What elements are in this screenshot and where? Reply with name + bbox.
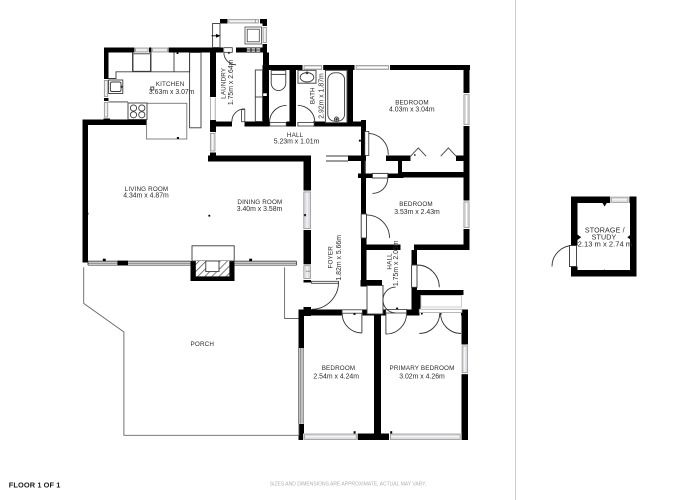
svg-text:5.23m x 1.01m: 5.23m x 1.01m bbox=[274, 139, 320, 146]
svg-text:FLOOR 1 OF 1: FLOOR 1 OF 1 bbox=[9, 480, 61, 489]
svg-text:2.13 m x 2.74 m: 2.13 m x 2.74 m bbox=[578, 240, 632, 249]
svg-text:2.92m x 1.87m: 2.92m x 1.87m bbox=[319, 73, 326, 119]
svg-text:BEDROOM: BEDROOM bbox=[399, 201, 433, 208]
svg-text:1.82m x 5.66m: 1.82m x 5.66m bbox=[336, 235, 343, 281]
svg-text:FOYER: FOYER bbox=[328, 246, 335, 269]
svg-text:1.75m x 2.05m: 1.75m x 2.05m bbox=[393, 240, 400, 286]
svg-text:BATH: BATH bbox=[310, 87, 317, 104]
svg-text:4.03m x 3.04m: 4.03m x 3.04m bbox=[389, 107, 435, 114]
svg-text:PRIMARY BEDROOM: PRIMARY BEDROOM bbox=[390, 365, 455, 372]
svg-text:BEDROOM: BEDROOM bbox=[395, 99, 429, 106]
svg-text:2.54m x 4.24m: 2.54m x 4.24m bbox=[313, 374, 359, 381]
svg-text:PORCH: PORCH bbox=[191, 341, 215, 348]
svg-text:3.02m x 4.26m: 3.02m x 4.26m bbox=[399, 374, 445, 381]
svg-text:3.53m x 2.43m: 3.53m x 2.43m bbox=[394, 209, 440, 216]
svg-text:DINING ROOM: DINING ROOM bbox=[237, 199, 282, 206]
svg-text:BEDROOM: BEDROOM bbox=[322, 365, 356, 372]
svg-text:KITCHEN: KITCHEN bbox=[156, 81, 185, 88]
svg-text:3.63m x 3.07m: 3.63m x 3.07m bbox=[149, 89, 195, 96]
svg-text:LAUNDRY: LAUNDRY bbox=[221, 67, 228, 99]
svg-text:3.40m x 3.58m: 3.40m x 3.58m bbox=[237, 206, 283, 213]
svg-text:SIZES AND DIMENSIONS ARE APPRO: SIZES AND DIMENSIONS ARE APPROXIMATE, AC… bbox=[270, 482, 427, 488]
svg-text:4.34m x 4.87m: 4.34m x 4.87m bbox=[123, 193, 169, 200]
svg-text:1.75m x 2.64m: 1.75m x 2.64m bbox=[228, 59, 235, 105]
